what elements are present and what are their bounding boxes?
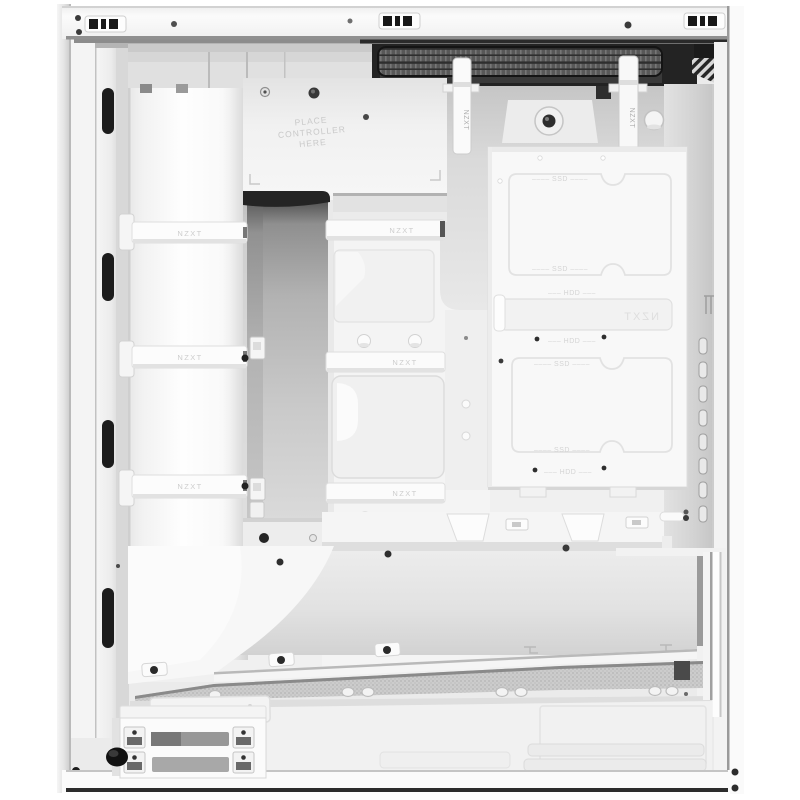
svg-text:NZXT: NZXT: [177, 353, 202, 362]
svg-text:––– HDD –––: ––– HDD –––: [548, 290, 596, 297]
svg-text:NZXT: NZXT: [177, 482, 202, 491]
svg-text:NZXT: NZXT: [392, 489, 417, 498]
svg-text:NZXT: NZXT: [628, 108, 635, 129]
svg-text:NZXT: NZXT: [392, 358, 417, 367]
svg-text:––– HDD –––: ––– HDD –––: [544, 469, 592, 476]
svg-text:NZXT: NZXT: [389, 226, 414, 235]
svg-text:––– HDD –––: ––– HDD –––: [548, 338, 596, 345]
svg-text:–––– SSD ––––: –––– SSD ––––: [534, 361, 590, 368]
svg-text:NZXT: NZXT: [177, 229, 202, 238]
svg-text:–––– SSD ––––: –––– SSD ––––: [534, 447, 590, 454]
svg-text:–––– SSD ––––: –––– SSD ––––: [532, 266, 588, 273]
svg-text:–––– SSD ––––: –––– SSD ––––: [532, 176, 588, 183]
svg-text:NZXT: NZXT: [622, 311, 659, 323]
svg-text:NZXT: NZXT: [462, 110, 469, 131]
